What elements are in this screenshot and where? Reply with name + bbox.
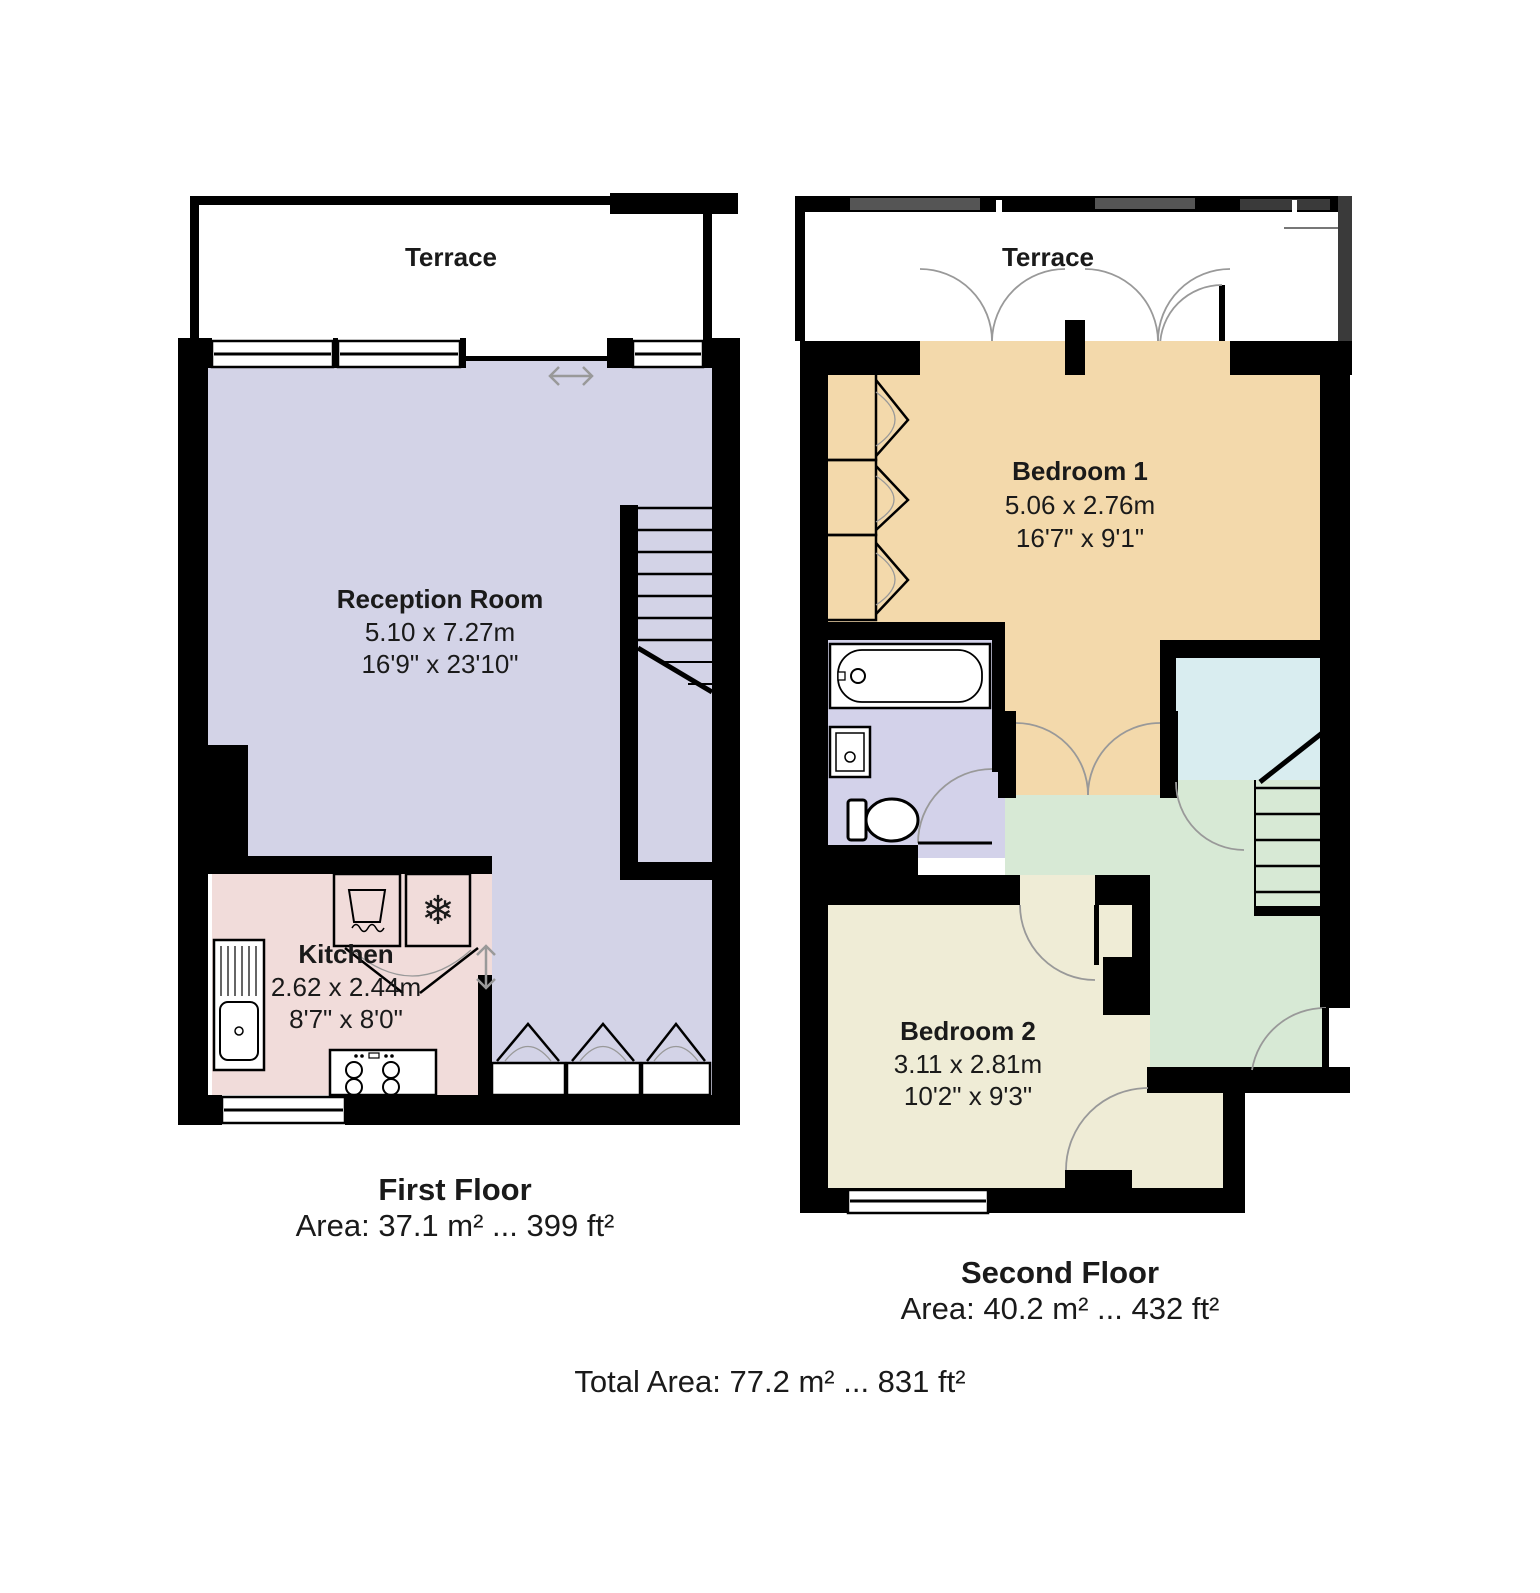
svg-text:5.06 x 2.76m: 5.06 x 2.76m: [1005, 490, 1155, 520]
floorplan-page: ❄: [0, 0, 1540, 1593]
svg-text:10'2" x 9'3": 10'2" x 9'3": [904, 1081, 1032, 1111]
terrace-label: Terrace: [405, 242, 497, 272]
french-door-swing: [992, 269, 1065, 341]
svg-text:Bedroom 1: Bedroom 1: [1012, 456, 1148, 486]
toilet-icon: [848, 799, 918, 841]
svg-text:First Floor: First Floor: [378, 1172, 531, 1207]
svg-text:Bedroom 2: Bedroom 2: [900, 1016, 1036, 1046]
first-floor-plan: ❄: [178, 193, 740, 1125]
terrace-label: Terrace: [1002, 242, 1094, 272]
first-floor-caption: First Floor Area: 37.1 m² ... 399 ft²: [296, 1172, 615, 1243]
bedroom1-label: Bedroom 1 5.06 x 2.76m 16'7" x 9'1": [1005, 456, 1155, 553]
second-floor-plan: Terrace Bedroom 1 5.06 x 2.76m 16'7" x 9…: [795, 196, 1352, 1213]
svg-text:16'7" x 9'1": 16'7" x 9'1": [1016, 523, 1144, 553]
window: [338, 341, 460, 367]
svg-text:Area: 37.1 m² ... 399 ft²: Area: 37.1 m² ... 399 ft²: [296, 1208, 615, 1243]
bathtub-icon: [830, 644, 990, 708]
french-door-opening-fill: [920, 341, 1065, 375]
oven-icon: [334, 874, 400, 946]
svg-text:Reception Room: Reception Room: [337, 584, 544, 614]
bedroom2-label: Bedroom 2 3.11 x 2.81m 10'2" x 9'3": [894, 1016, 1042, 1111]
landing-main: [1176, 780, 1324, 1070]
french-door-opening-fill: [1085, 341, 1230, 375]
svg-text:8'7" x 8'0": 8'7" x 8'0": [289, 1004, 403, 1034]
window: [212, 341, 333, 367]
stove-icon: [330, 1050, 436, 1095]
svg-text:2.62 x 2.44m: 2.62 x 2.44m: [271, 972, 421, 1002]
total-area-caption: Total Area: 77.2 m² ... 831 ft²: [574, 1364, 965, 1399]
reception-label: Reception Room 5.10 x 7.27m 16'9" x 23'1…: [337, 584, 544, 679]
svg-text:Area: 40.2 m² ... 432 ft²: Area: 40.2 m² ... 432 ft²: [901, 1291, 1220, 1326]
window: [633, 341, 703, 367]
second-floor-caption: Second Floor Area: 40.2 m² ... 432 ft²: [901, 1255, 1220, 1326]
window: [222, 1097, 345, 1123]
window: [848, 1190, 988, 1213]
sink-icon: [214, 940, 264, 1070]
french-door-swing: [920, 269, 992, 341]
svg-text:3.11 x 2.81m: 3.11 x 2.81m: [894, 1049, 1042, 1079]
svg-text:5.10 x 7.27m: 5.10 x 7.27m: [365, 617, 515, 647]
floorplan-drawing: ❄: [0, 0, 1540, 1593]
svg-text:❄: ❄: [421, 889, 455, 933]
svg-text:Kitchen: Kitchen: [298, 939, 393, 969]
svg-text:Second Floor: Second Floor: [961, 1255, 1159, 1290]
washbasin-icon: [830, 727, 870, 777]
terrace-door: [1160, 285, 1225, 347]
svg-text:16'9" x 23'10": 16'9" x 23'10": [361, 649, 518, 679]
french-door-swing: [1085, 269, 1158, 341]
freezer-icon: ❄: [406, 874, 470, 946]
stair-room: [1176, 658, 1324, 780]
